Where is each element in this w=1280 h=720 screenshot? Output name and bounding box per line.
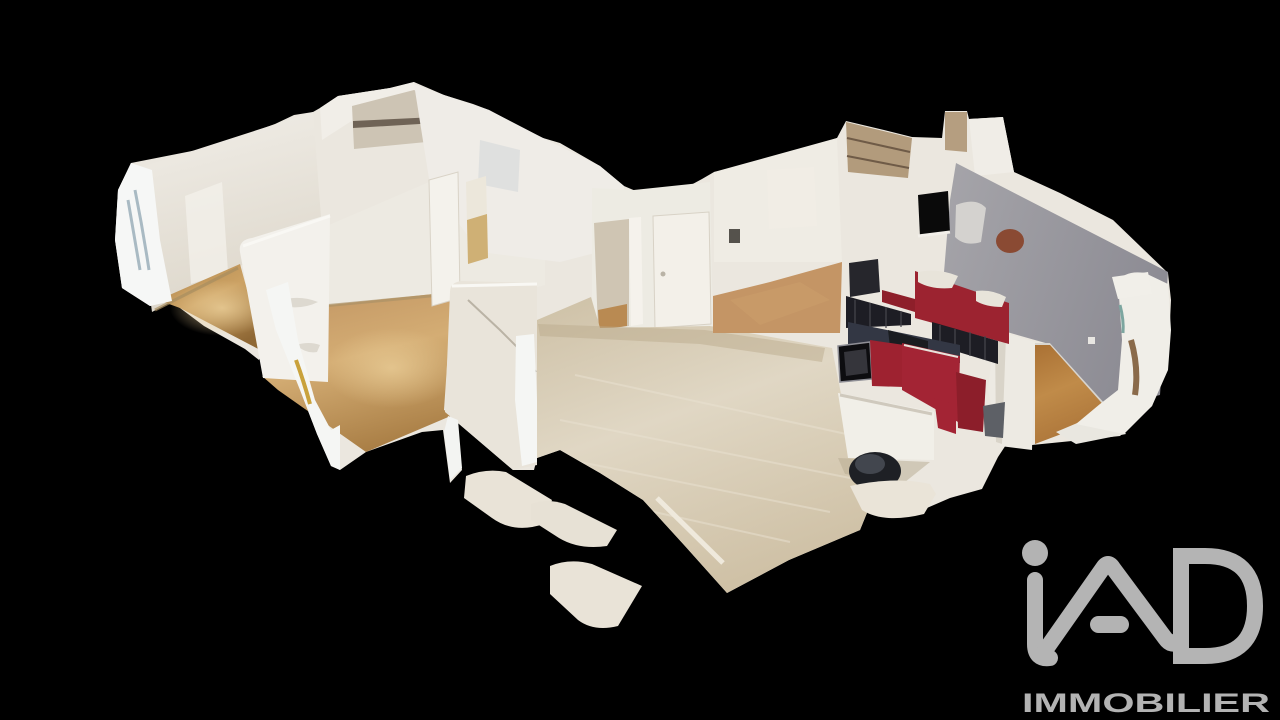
svg-text:IMMOBILIER: IMMOBILIER xyxy=(1022,688,1270,718)
